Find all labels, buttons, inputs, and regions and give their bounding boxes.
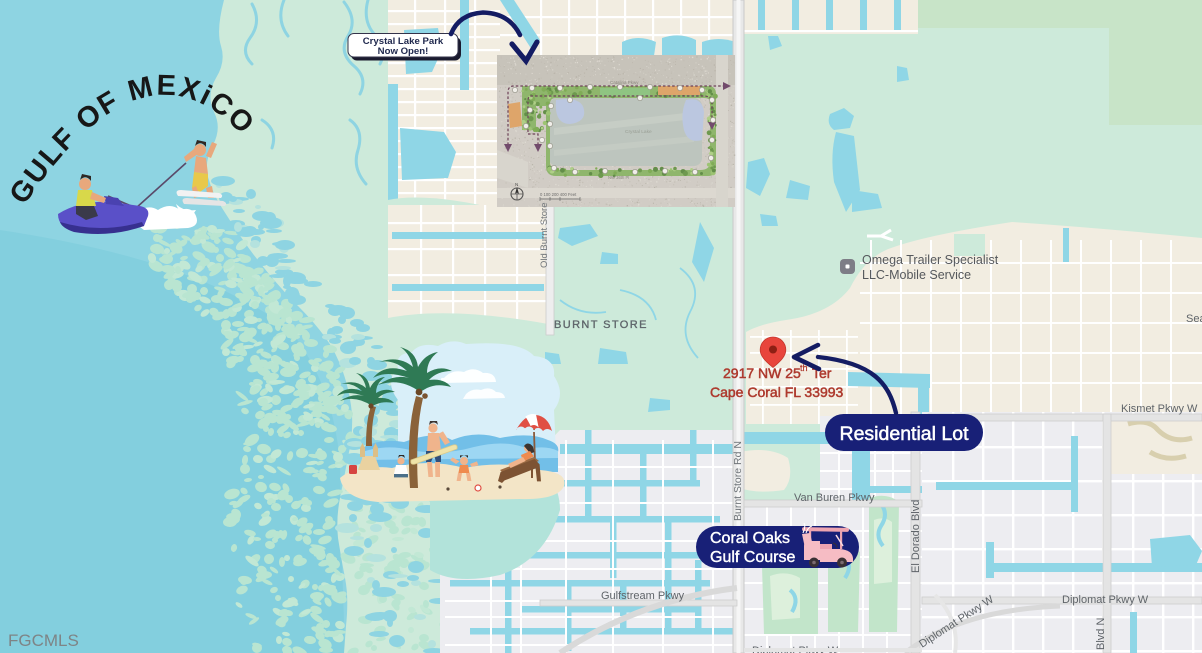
svg-text:BURNT STORE: BURNT STORE: [554, 319, 648, 331]
svg-text:Coral Oaks: Coral Oaks: [710, 530, 790, 547]
svg-text:Burnt Store Rd N: Burnt Store Rd N: [732, 441, 744, 521]
svg-text:Gulf Course: Gulf Course: [710, 549, 795, 566]
svg-text:Van Buren Pkwy: Van Buren Pkwy: [794, 492, 875, 504]
svg-text:Sea: Sea: [1186, 313, 1202, 325]
svg-text:Residential Lot: Residential Lot: [840, 423, 970, 445]
svg-text:Old Burnt Store: Old Burnt Store: [539, 203, 550, 268]
svg-text:Diplomat Pkwy W: Diplomat Pkwy W: [1062, 594, 1149, 606]
svg-text:Kismet Pkwy W: Kismet Pkwy W: [1121, 403, 1198, 415]
svg-text:Cape Coral FL 33993: Cape Coral FL 33993: [710, 384, 844, 400]
svg-text:El Dorado Blvd: El Dorado Blvd: [910, 500, 922, 573]
svg-text:Omega Trailer Specialist: Omega Trailer Specialist: [862, 253, 999, 267]
svg-text:Now Open!: Now Open!: [378, 46, 429, 57]
svg-text:Gulfstream Pkwy: Gulfstream Pkwy: [601, 590, 685, 602]
svg-text:2917 NW 25: 2917 NW 25: [723, 365, 801, 381]
svg-text:LLC-Mobile Service: LLC-Mobile Service: [862, 268, 971, 282]
svg-text:FGCMLS: FGCMLS: [8, 631, 79, 650]
svg-text:Blvd N: Blvd N: [1095, 618, 1107, 650]
